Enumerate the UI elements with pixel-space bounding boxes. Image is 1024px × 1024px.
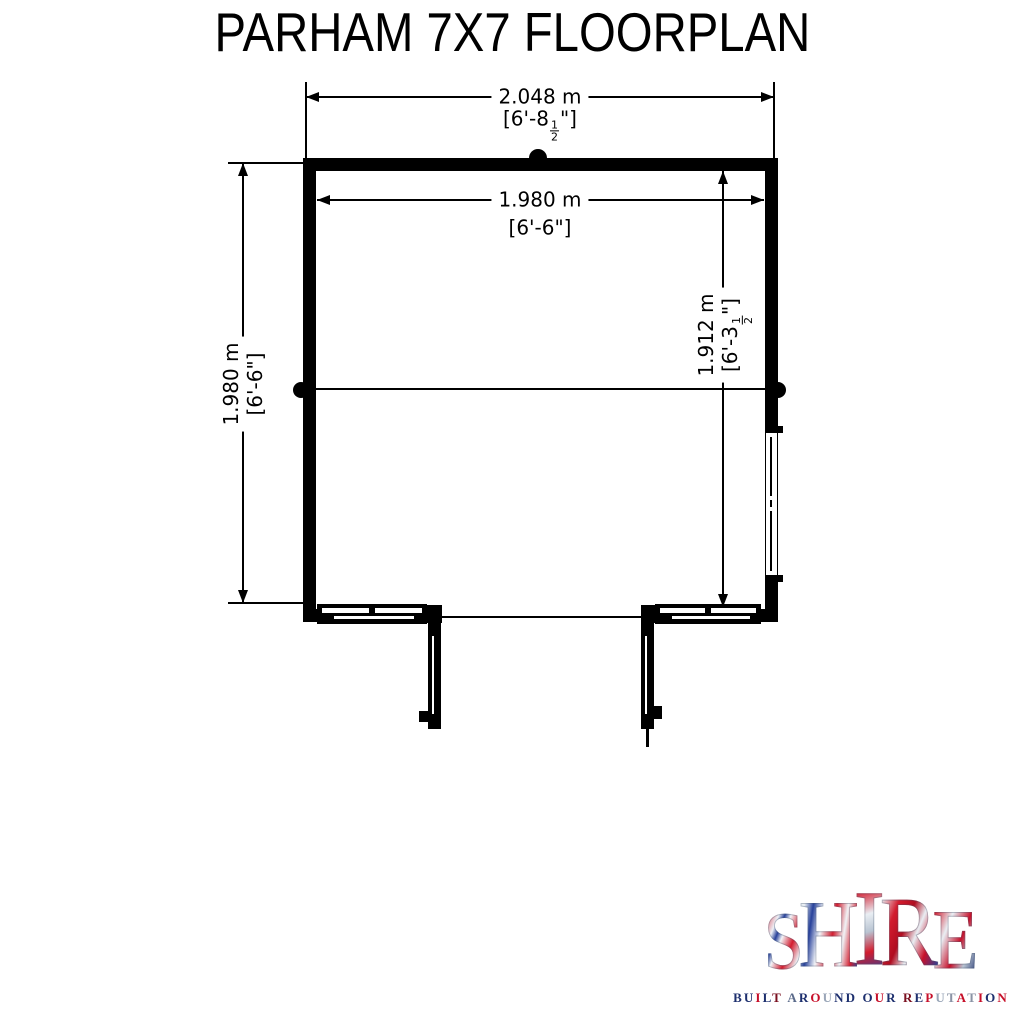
dim-width-metric-label: 2.048 m: [491, 86, 588, 109]
floorplan-drawing: 2.048 m [6'-812"] 1.980 m [6'-6"] 1.980 …: [0, 0, 1024, 780]
window-right-glazing-dash-gap-a: [770, 496, 772, 500]
tagline-letter: A: [957, 990, 968, 1005]
dim-inner-width-arrow-left: [317, 195, 330, 205]
dim-depth-arrow-bottom: [238, 590, 248, 603]
window-bottom-right-frame: [655, 604, 761, 624]
door-handle-left: [419, 711, 430, 722]
tagline-letter: T: [967, 990, 978, 1005]
shire-wordmark: SHIRE: [743, 880, 998, 987]
dim-width-arrow-left: [306, 92, 319, 102]
wall-left: [303, 158, 316, 622]
door-handle-right-stem: [646, 729, 649, 747]
shire-logo: SHIRE BUILT AROUND OUR REPUTATION: [726, 880, 1016, 1006]
dim-inner-depth-imperial-text: [6'-312"]: [718, 293, 754, 376]
dim-inner-width-metric-label: 1.980 m: [491, 189, 588, 212]
tagline-letter: N: [834, 990, 846, 1005]
dim-inner-depth-arrow-top: [718, 171, 728, 184]
door-threshold-line: [442, 616, 641, 618]
window-bottom-left-sill-line: [334, 616, 414, 619]
dim-width-fraction: 12: [550, 120, 559, 143]
door-leaf-right-groove: [645, 636, 647, 714]
window-bottom-left-glazing-b: [375, 608, 422, 613]
tagline-letter: O: [862, 990, 874, 1005]
window-right-glazing-dash-gap-b: [770, 507, 772, 511]
dim-inner-depth-fraction: 12: [731, 316, 754, 325]
page-title-text: PARHAM 7X7 FLOORPLAN: [214, 0, 810, 64]
dim-width-metric-text: 2.048 m: [498, 85, 581, 109]
tagline-letter: T: [947, 990, 957, 1005]
tagline-letter: U: [744, 990, 756, 1005]
tagline-letter: A: [787, 990, 799, 1005]
dim-depth-arrow-top: [238, 163, 248, 176]
tagline-letter: P: [925, 990, 935, 1005]
door-leaf-left-groove: [432, 636, 434, 714]
window-bottom-left-glazing-a: [322, 608, 369, 613]
window-right-cap-top: [766, 426, 783, 433]
dim-inner-width-imperial-label: [6'-6"]: [502, 217, 579, 240]
wall-top: [303, 158, 778, 171]
tagline-letter: B: [733, 990, 744, 1005]
shire-letter-r: R: [880, 878, 938, 987]
dim-depth-metric-text: 1.980 m: [219, 342, 243, 425]
shire-letter-h: H: [799, 881, 859, 987]
interior-mid-line: [316, 388, 765, 390]
tagline-letter: O: [810, 990, 822, 1005]
tagline-letter: N: [997, 990, 1009, 1005]
dim-inner-depth-arrow-bottom: [718, 594, 728, 607]
page-title: PARHAM 7X7 FLOORPLAN: [0, 0, 1024, 64]
shire-tagline: BUILT AROUND OUR REPUTATION: [726, 990, 1016, 1006]
tagline-letter: R: [903, 990, 915, 1005]
tagline-letter: O: [985, 990, 997, 1005]
shire-letter-e: E: [933, 893, 979, 987]
dim-depth-imperial-text: [6'-6"]: [243, 342, 267, 425]
dim-inner-depth-metric-text: 1.912 m: [694, 293, 718, 376]
shire-letter-s: S: [764, 895, 804, 986]
tagline-letter: I: [755, 990, 762, 1005]
window-bottom-right-glazing-a: [660, 608, 705, 613]
dim-inner-width-metric-text: 1.980 m: [498, 188, 581, 212]
dim-inner-width-arrow-right: [751, 195, 764, 205]
dim-width-arrow-right: [761, 92, 774, 102]
window-bottom-right-sill-line: [672, 616, 750, 619]
floorplan-page: 2.048 m [6'-812"] 1.980 m [6'-6"] 1.980 …: [0, 0, 1024, 1024]
tagline-letter: R: [799, 990, 811, 1005]
dim-inner-depth-label: 1.912 m [6'-312"]: [691, 287, 757, 382]
dim-width-imperial-close: "]: [560, 106, 577, 130]
window-right-glazing-line: [770, 437, 772, 571]
tagline-letter: R: [886, 990, 898, 1005]
window-bottom-left-frame: [317, 604, 427, 624]
tagline-letter: U: [935, 990, 947, 1005]
tagline-letter: U: [875, 990, 887, 1005]
dim-width-fraction-denominator: 2: [550, 132, 559, 143]
tagline-letter: T: [772, 990, 783, 1005]
door-handle-right: [653, 706, 662, 719]
dim-inner-depth-line: [722, 171, 724, 607]
tagline-letter: L: [763, 990, 773, 1005]
dim-width-imperial-label: [6'-812"]: [496, 107, 584, 142]
dim-depth-label: 1.980 m [6'-6"]: [216, 336, 270, 431]
dim-inner-width-imperial-text: [6'-6"]: [509, 216, 572, 240]
dim-inner-depth-imperial-close: "]: [718, 298, 742, 315]
dim-inner-depth-fraction-denominator: 2: [743, 316, 754, 325]
dim-inner-depth-imperial-open: [6'-3: [718, 326, 742, 372]
tagline-letter: D: [846, 990, 858, 1005]
window-right-cap-bottom: [766, 575, 783, 582]
tagline-letter: U: [823, 990, 835, 1005]
tagline-letter: E: [915, 990, 926, 1005]
dim-width-imperial-open: [6'-8: [503, 106, 549, 130]
window-bottom-right-glazing-b: [711, 608, 756, 613]
